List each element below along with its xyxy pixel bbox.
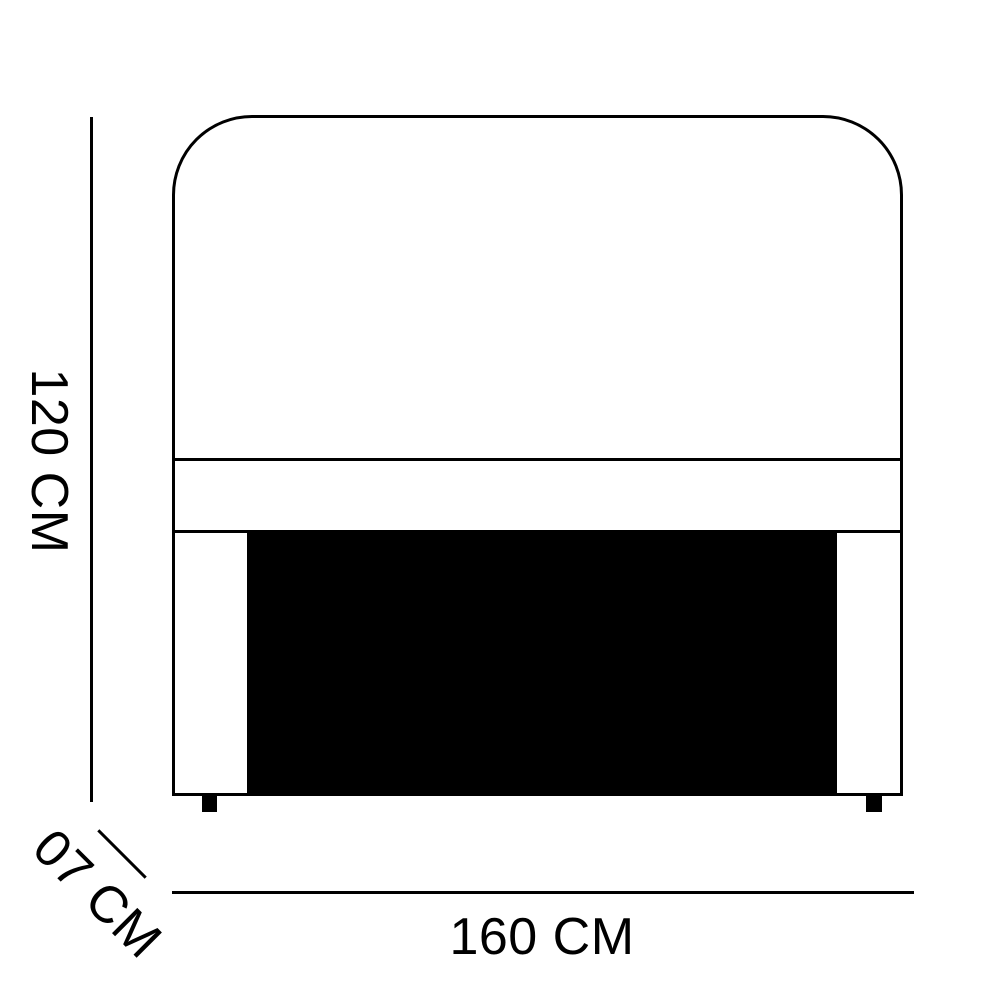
- base-recess-panel: [247, 533, 837, 793]
- height-dimension-label: 120 CM: [23, 368, 75, 553]
- width-dimension-label: 160 CM: [449, 911, 634, 963]
- width-dimension-line: [172, 891, 914, 894]
- height-dimension-line: [90, 117, 93, 802]
- headboard-panel-divider-line: [175, 458, 900, 461]
- depth-dimension-label: 07 CM: [24, 821, 171, 968]
- right-foot: [866, 795, 882, 812]
- left-foot: [202, 795, 217, 812]
- headboard-outline: [172, 115, 903, 796]
- diagram-canvas: 120 CM 07 CM 160 CM: [0, 0, 1000, 1000]
